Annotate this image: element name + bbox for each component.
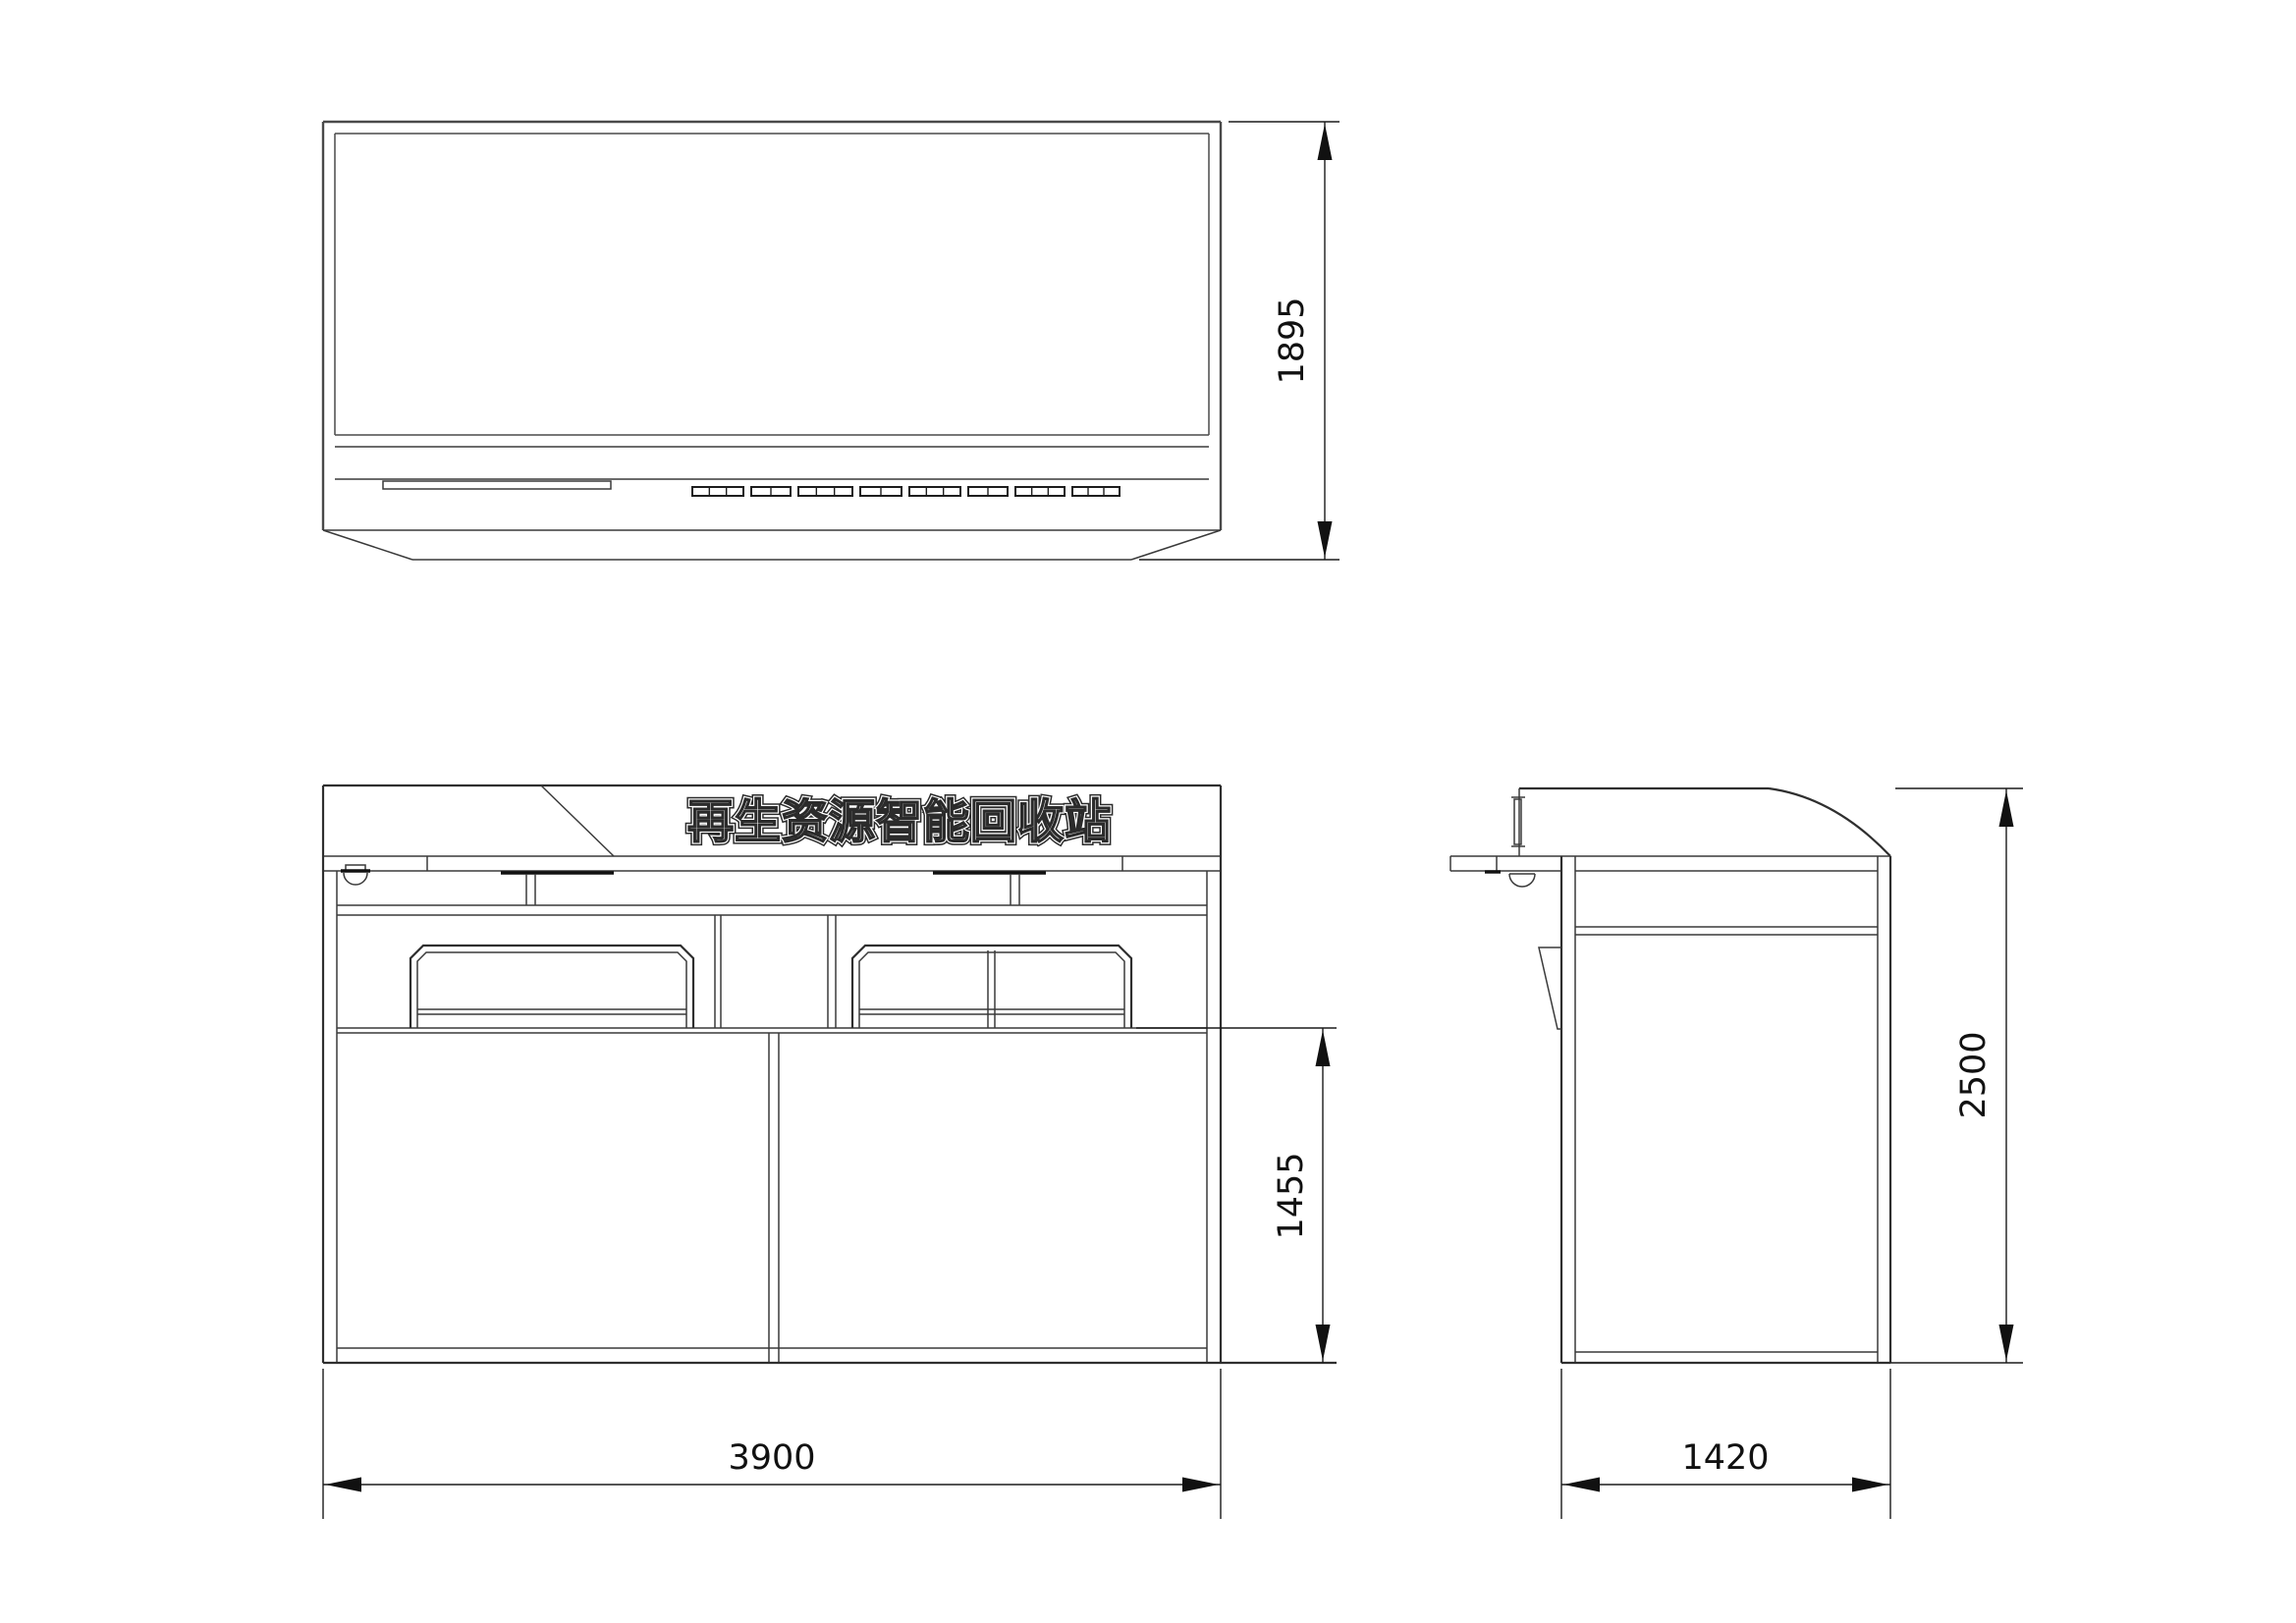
dimension-3900: 3900 bbox=[323, 1369, 1221, 1519]
left-deposit-slot bbox=[410, 946, 693, 1028]
arrow-left-icon bbox=[1563, 1478, 1600, 1492]
dim-1895-label: 1895 bbox=[1273, 297, 1312, 384]
signboard-text: 再生资源智能回收站 bbox=[687, 795, 1112, 849]
camera-dome-icon bbox=[1485, 872, 1535, 887]
front-view: 再生资源智能回收站 再生资源智能回收站 再生资源智能回收站 bbox=[323, 785, 1337, 1363]
arrow-up-icon bbox=[1999, 790, 2014, 827]
center-column bbox=[715, 915, 836, 1028]
arrow-down-icon bbox=[1316, 1325, 1331, 1361]
plan-vent-tick-row bbox=[692, 487, 1120, 496]
plan-chamfer-right bbox=[1131, 530, 1221, 560]
dimension-1455: 1455 bbox=[1136, 1028, 1337, 1363]
right-deposit-slot bbox=[852, 946, 1131, 1028]
side-view bbox=[1450, 788, 2023, 1363]
plan-chamfer-left bbox=[323, 530, 412, 560]
roof-curve bbox=[1769, 788, 1890, 856]
signboard: 再生资源智能回收站 再生资源智能回收站 再生资源智能回收站 bbox=[687, 795, 1112, 849]
service-doors bbox=[337, 1033, 1207, 1363]
arrow-up-icon bbox=[1318, 124, 1333, 160]
dim-1455-label: 1455 bbox=[1272, 1152, 1311, 1239]
arrow-right-icon bbox=[1852, 1478, 1888, 1492]
slot-chute-bracket bbox=[1539, 947, 1561, 1029]
dimension-1895: 1895 bbox=[1139, 122, 1339, 560]
roof-fold-line bbox=[541, 785, 614, 856]
plan-ledge-bar bbox=[383, 481, 611, 489]
arrow-down-icon bbox=[1318, 521, 1333, 558]
dim-2500-label: 2500 bbox=[1954, 1031, 1994, 1118]
dim-3900-label: 3900 bbox=[728, 1438, 815, 1478]
arrow-up-icon bbox=[1316, 1030, 1331, 1066]
signboard-edge bbox=[1511, 797, 1525, 846]
dim-1420-label: 1420 bbox=[1681, 1438, 1769, 1478]
dimension-1420: 1420 bbox=[1561, 1369, 1890, 1519]
drawing-sheet: 1895 再生资源智能回收站 再生资源智能回收站 再生资源智能回收站 bbox=[0, 0, 2296, 1623]
arrow-right-icon bbox=[1182, 1478, 1219, 1492]
camera-dome-icon bbox=[341, 865, 370, 885]
top-view bbox=[323, 122, 1221, 560]
dimension-2500: 2500 bbox=[1895, 788, 2023, 1363]
cad-drawing: 1895 再生资源智能回收站 再生资源智能回收站 再生资源智能回收站 bbox=[0, 0, 2296, 1623]
arrow-down-icon bbox=[1999, 1325, 2014, 1361]
arrow-left-icon bbox=[325, 1478, 361, 1492]
